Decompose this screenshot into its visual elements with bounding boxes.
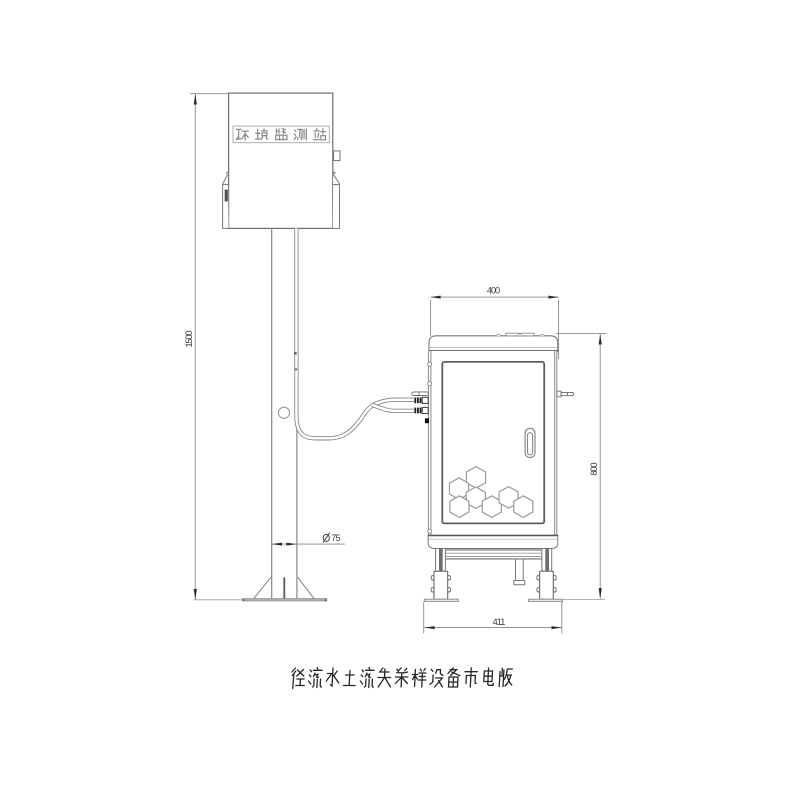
svg-text:411: 411 (493, 617, 506, 627)
svg-text:400: 400 (487, 286, 500, 296)
svg-text:800: 800 (589, 462, 599, 475)
svg-text:75: 75 (331, 533, 340, 543)
svg-text:1500: 1500 (184, 330, 194, 347)
